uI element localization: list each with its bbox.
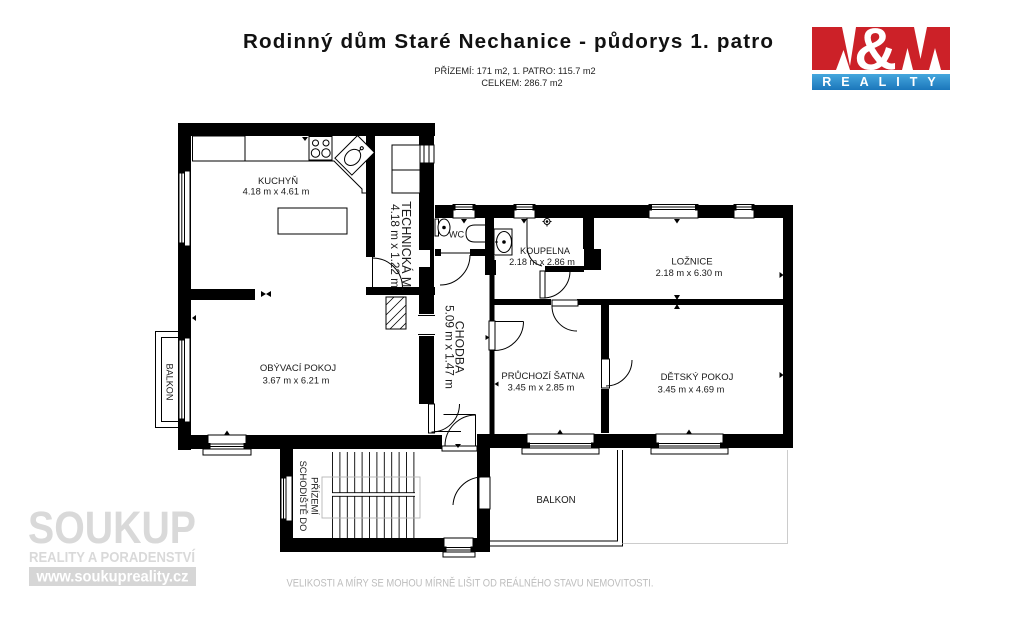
svg-text:VELIKOSTI A MÍRY SE MOHOU MÍRN: VELIKOSTI A MÍRY SE MOHOU MÍRNĚ LIŠIT OD… xyxy=(287,577,654,590)
svg-text:KUCHYŇ: KUCHYŇ xyxy=(258,176,298,187)
svg-text:BALKON: BALKON xyxy=(536,495,575,506)
svg-text:PŘÍZEMÍ: 171 m2, 1. PATRO: 115: PŘÍZEMÍ: 171 m2, 1. PATRO: 115.7 m2 xyxy=(434,66,595,76)
svg-text:4.18 m x 1.22 m: 4.18 m x 1.22 m xyxy=(388,204,401,288)
svg-text:SOUKUP: SOUKUP xyxy=(28,502,196,553)
svg-text:3.67 m x 6.21 m: 3.67 m x 6.21 m xyxy=(263,376,330,386)
svg-text:CELKEM: 286.7 m2: CELKEM: 286.7 m2 xyxy=(481,78,562,88)
svg-text:SCHODIŠTĚ DO: SCHODIŠTĚ DO xyxy=(298,461,308,532)
svg-text:DĚTSKÝ POKOJ: DĚTSKÝ POKOJ xyxy=(661,372,734,383)
svg-text:2.18 m x 6.30 m: 2.18 m x 6.30 m xyxy=(656,268,723,278)
svg-text:PŘÍZEMÍ: PŘÍZEMÍ xyxy=(310,477,320,515)
svg-text:3.45 m x 2.85 m: 3.45 m x 2.85 m xyxy=(508,383,575,393)
svg-text:OBÝVACÍ POKOJ: OBÝVACÍ POKOJ xyxy=(260,363,337,374)
svg-text:LOŽNICE: LOŽNICE xyxy=(671,257,712,268)
svg-text:5.09 m x 1.47 m: 5.09 m x 1.47 m xyxy=(443,305,456,389)
svg-text:www.soukupreality.cz: www.soukupreality.cz xyxy=(36,569,189,586)
svg-text:Rodinný dům Staré Nechanice -: Rodinný dům Staré Nechanice - půdorys 1.… xyxy=(243,30,773,53)
svg-text:REALITY: REALITY xyxy=(822,75,945,89)
svg-text:PRŮCHOZÍ ŠATNA: PRŮCHOZÍ ŠATNA xyxy=(501,370,585,382)
svg-text:3.45 m x 4.69 m: 3.45 m x 4.69 m xyxy=(658,385,725,395)
svg-text:KOUPELNA: KOUPELNA xyxy=(520,246,571,256)
svg-text:WC: WC xyxy=(449,230,465,240)
svg-text:&: & xyxy=(854,17,897,83)
svg-text:4.18 m x 4.61 m: 4.18 m x 4.61 m xyxy=(243,187,310,197)
svg-text:BALKON: BALKON xyxy=(165,364,175,401)
svg-text:2.18 m x 2.86 m: 2.18 m x 2.86 m xyxy=(509,257,575,267)
svg-text:REALITY A PORADENSTVÍ: REALITY A PORADENSTVÍ xyxy=(29,549,196,566)
